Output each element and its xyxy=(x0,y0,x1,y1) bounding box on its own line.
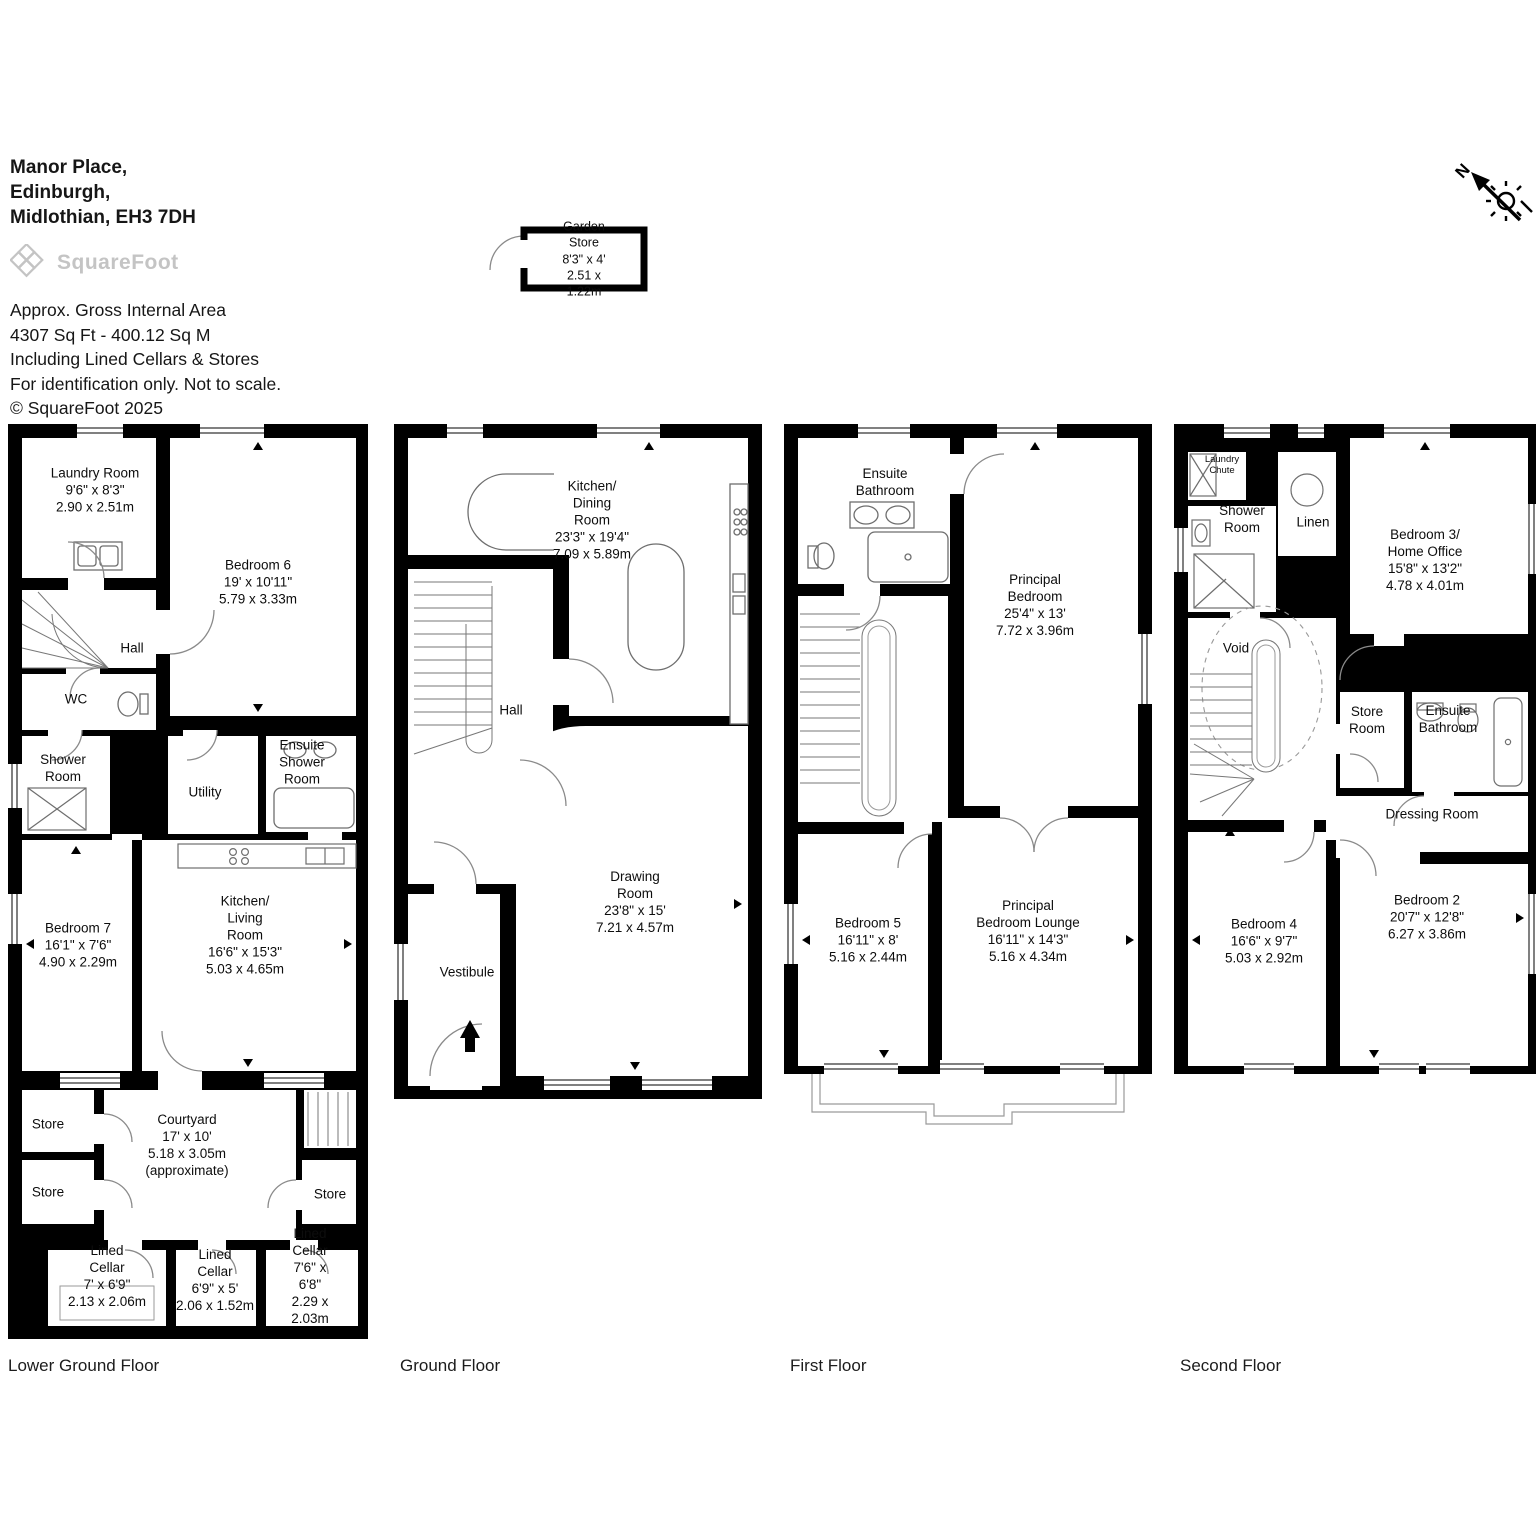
area-line-3: Including Lined Cellars & Stores xyxy=(10,347,281,372)
room-label-bedroom-2: Bedroom 2 20'7" x 12'8" 6.27 x 3.86m xyxy=(1388,892,1466,943)
room-label-kitchen-living-room: Kitchen/ Living Room 16'6" x 15'3" 5.03 … xyxy=(206,893,284,978)
north-arrow-icon: N xyxy=(1448,150,1536,245)
room-label-ensuite-shower-room: Ensuite Shower Room xyxy=(279,737,325,788)
room-label-wc: WC xyxy=(65,691,88,708)
room-label-lgf-shower-room: Shower Room xyxy=(40,751,86,785)
room-label-store-3: Store xyxy=(314,1186,346,1203)
room-label-bedroom-5: Bedroom 5 16'11" x 8' 5.16 x 2.44m xyxy=(829,915,907,966)
room-label-bedroom-3-home-office: Bedroom 3/ Home Office 15'8" x 13'2" 4.7… xyxy=(1386,526,1464,594)
squarefoot-logo-icon xyxy=(10,244,48,282)
room-label-laundry-chute: Laundry Chute xyxy=(1205,455,1239,477)
room-label-store-2: Store xyxy=(32,1184,64,1201)
room-label-kitchen-dining-room: Kitchen/ Dining Room 23'3" x 19'4" 7.09 … xyxy=(553,478,631,563)
area-line-1: Approx. Gross Internal Area xyxy=(10,298,281,323)
room-label-laundry-room: Laundry Room 9'6" x 8'3" 2.90 x 2.51m xyxy=(51,465,140,516)
room-label-linen: Linen xyxy=(1293,514,1332,531)
garden-store: Garden Store 8'3" x 4' 2.51 x 1.22m xyxy=(486,224,651,294)
room-label-lined-cellar-1: Lined Cellar 7' x 6'9" 2.13 x 2.06m xyxy=(68,1242,146,1310)
caption-lower-ground-floor: Lower Ground Floor xyxy=(8,1356,159,1376)
area-line-2: 4307 Sq Ft - 400.12 Sq M xyxy=(10,323,281,348)
room-label-lined-cellar-2: Lined Cellar 6'9" x 5' 2.06 x 1.52m xyxy=(176,1246,254,1314)
caption-second-floor: Second Floor xyxy=(1180,1356,1281,1376)
lower-ground-floor: Laundry Room 9'6" x 8'3" 2.90 x 2.51m Be… xyxy=(8,424,368,1339)
room-label-bedroom-7: Bedroom 7 16'1" x 7'6" 4.90 x 2.29m xyxy=(39,920,117,971)
room-label-bedroom-6: Bedroom 6 19' x 10'11" 5.79 x 3.33m xyxy=(219,557,297,608)
balcony-outline xyxy=(812,1074,1124,1124)
address-line-1: Manor Place, xyxy=(10,155,196,180)
area-line-4: For identification only. Not to scale. xyxy=(10,372,281,397)
caption-first-floor: First Floor xyxy=(790,1356,867,1376)
second-floor: Laundry Chute Shower Room Linen Bedroom … xyxy=(1174,424,1536,1089)
address-line-2: Edinburgh, xyxy=(10,180,196,205)
room-label-utility: Utility xyxy=(189,784,222,801)
first-floor-plan xyxy=(784,424,1152,1139)
room-label-vestibule: Vestibule xyxy=(440,964,495,981)
room-label-garden-store: Garden Store 8'3" x 4' 2.51 x 1.22m xyxy=(551,218,618,299)
room-label-principal-bedroom: Principal Bedroom 25'4" x 13' 7.72 x 3.9… xyxy=(996,571,1074,639)
north-label: N xyxy=(1451,160,1473,182)
sun-icon xyxy=(1486,181,1532,221)
property-address: Manor Place, Edinburgh, Midlothian, EH3 … xyxy=(10,155,196,230)
room-label-sf-ensuite-bathroom: Ensuite Bathroom xyxy=(1419,702,1478,736)
floorplan-page: Manor Place, Edinburgh, Midlothian, EH3 … xyxy=(0,0,1536,1536)
room-label-gf-hall: Hall xyxy=(499,702,522,719)
address-line-3: Midlothian, EH3 7DH xyxy=(10,205,196,230)
room-label-void: Void xyxy=(1223,640,1249,657)
compass: N xyxy=(1448,150,1536,245)
room-label-store-1: Store xyxy=(32,1116,64,1133)
squarefoot-logo-text: SquareFoot xyxy=(57,251,179,275)
room-label-sf-shower-room: Shower Room xyxy=(1219,502,1265,536)
room-label-dressing-room: Dressing Room xyxy=(1385,806,1478,823)
caption-ground-floor: Ground Floor xyxy=(400,1356,500,1376)
room-label-principal-bedroom-lounge: Principal Bedroom Lounge 16'11" x 14'3" … xyxy=(976,897,1080,965)
room-label-drawing-room: Drawing Room 23'8" x 15' 7.21 x 4.57m xyxy=(596,868,674,936)
room-label-courtyard: Courtyard 17' x 10' 5.18 x 3.05m (approx… xyxy=(145,1111,228,1179)
squarefoot-logo: SquareFoot xyxy=(10,244,179,282)
first-floor: Ensuite Bathroom Principal Bedroom 25'4"… xyxy=(784,424,1152,1139)
room-label-bedroom-4: Bedroom 4 16'6" x 9'7" 5.03 x 2.92m xyxy=(1225,916,1303,967)
room-label-lined-cellar-3: Lined Cellar 7'6" x 6'8" 2.29 x 2.03m xyxy=(281,1225,339,1327)
area-line-5: © SquareFoot 2025 xyxy=(10,396,281,421)
kitchen-counter-icon xyxy=(178,844,356,868)
area-summary: Approx. Gross Internal Area 4307 Sq Ft -… xyxy=(10,298,281,421)
ground-floor: Kitchen/ Dining Room 23'3" x 19'4" 7.09 … xyxy=(394,424,762,1099)
room-label-ff-ensuite-bathroom: Ensuite Bathroom xyxy=(856,465,915,499)
room-label-lgf-hall: Hall xyxy=(120,640,143,657)
room-label-store-room: Store Room xyxy=(1349,703,1385,737)
